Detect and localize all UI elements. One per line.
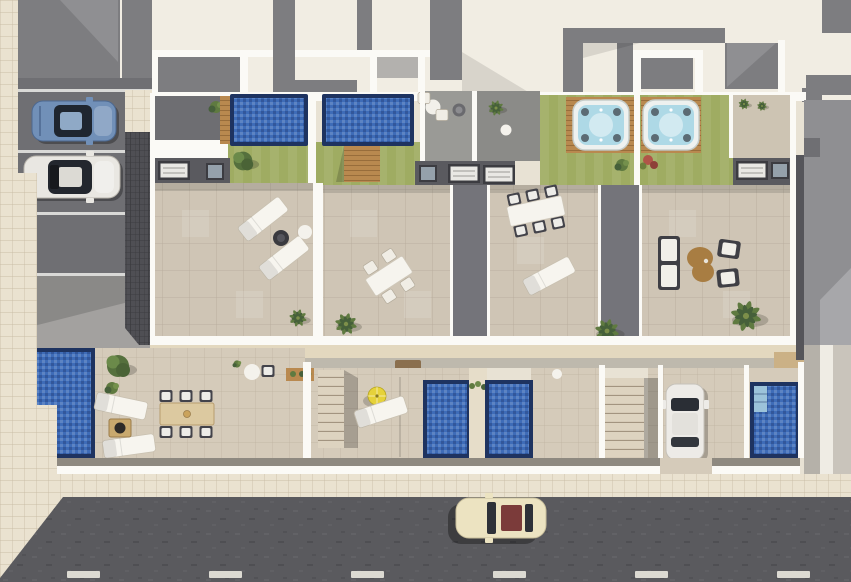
table-centerpiece (184, 411, 191, 418)
unit2-pool (423, 380, 471, 458)
unit2-staircase (318, 370, 358, 448)
access-strip-b (601, 185, 639, 338)
street-car-roof-accent (501, 505, 522, 531)
neighbour-wall (820, 345, 833, 474)
stair-shadow (344, 370, 358, 448)
terrace-bottom-parapet (150, 336, 806, 345)
ac-unit (483, 165, 515, 184)
recessed-patio-roof (377, 57, 418, 78)
street-car-rear-glass (525, 504, 533, 532)
unit4-staircase (604, 378, 658, 458)
rooftop-pool-unit2 (322, 94, 414, 146)
patio-chair (262, 365, 275, 377)
round-patio-table (244, 364, 260, 380)
hot-tub (573, 100, 629, 150)
driveway-apron (660, 458, 712, 474)
roof-terraces (155, 183, 790, 343)
ac-unit (206, 163, 224, 180)
scene-canvas (0, 0, 851, 582)
pool2-mosaic (326, 98, 410, 142)
road-texture (0, 497, 851, 582)
dining-chair (180, 426, 193, 438)
cream-street-car (448, 493, 546, 544)
neighbour-yard (804, 345, 820, 474)
ac-unit (158, 161, 190, 180)
pool1-deck-slats (220, 96, 231, 144)
car-windshield (671, 398, 699, 411)
white-car-hood (94, 161, 114, 193)
blue-car (32, 97, 119, 145)
unit3-pool (485, 380, 533, 458)
white-car-sunroof (50, 165, 59, 189)
bistro-chair (436, 110, 448, 121)
side-alley (796, 155, 804, 360)
white-car-roof (58, 167, 82, 187)
unit3-hot-tub-deck (566, 97, 634, 153)
right-neighbour (796, 100, 851, 474)
car-roof (672, 413, 698, 435)
white-driveway-car (661, 384, 709, 463)
ac-unit (736, 161, 768, 180)
front-wall (712, 466, 800, 474)
ac-unit (771, 162, 789, 179)
dining-chair (180, 390, 193, 402)
dining-chair (160, 390, 173, 402)
ground-floor (14, 336, 806, 474)
court-side-table (501, 125, 512, 136)
blue-car-roof (60, 112, 82, 130)
neighbour-drive (833, 345, 851, 474)
fire-bowl-center (277, 234, 285, 242)
armchair (717, 239, 741, 260)
fire-pit (109, 419, 131, 437)
access-strip-a (453, 185, 487, 338)
white-parked-car (24, 151, 123, 203)
unit4-hot-tub-deck (641, 97, 701, 153)
car-rear-glass (671, 437, 699, 447)
unit4-pool (750, 382, 800, 458)
street-car-windshield (487, 502, 496, 534)
ac-unit (448, 164, 480, 183)
aerial-render (0, 0, 851, 582)
round-side-table (298, 225, 312, 239)
fire-bowl-inner (456, 107, 463, 114)
entry-tile-grid (125, 90, 152, 132)
pool1-mosaic (234, 98, 304, 142)
front-wall (20, 466, 660, 474)
unit1-dining-set (160, 390, 215, 438)
hot-tub (643, 100, 699, 150)
dining-chair (200, 390, 213, 402)
front-wall-shadow (20, 458, 660, 466)
rooftop-pool-unit1 (230, 94, 308, 146)
pool-entry-steps (754, 386, 767, 412)
pool-divider-wall (469, 368, 487, 458)
blue-car-hood (94, 106, 112, 136)
front-wall-shadow (712, 458, 800, 466)
outdoor-sofa (658, 236, 680, 290)
parking-area (18, 78, 152, 348)
fence-shadow-line (399, 377, 401, 457)
dining-chair (200, 426, 213, 438)
paver-texture (125, 132, 152, 345)
neighbour-roof-notch (804, 138, 820, 157)
small-patio-table (552, 369, 562, 379)
dining-chair (160, 426, 173, 438)
unit1-porch-roof (150, 140, 230, 158)
armchair (716, 268, 740, 288)
stair-side-shadow (644, 378, 658, 458)
ac-unit (419, 165, 437, 182)
